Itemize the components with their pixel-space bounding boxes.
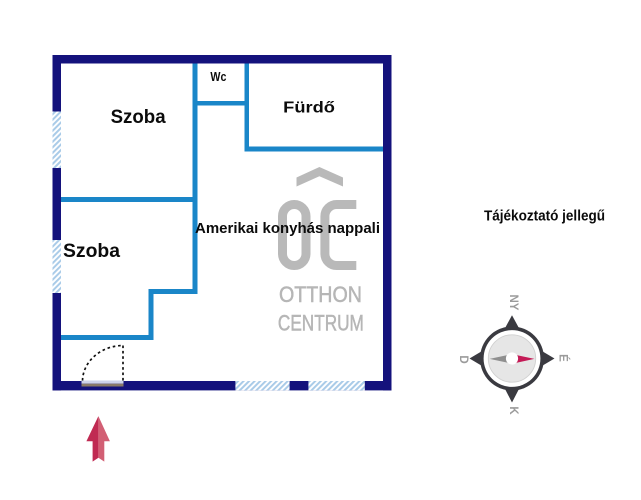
svg-text:Tájékoztató jellegű: Tájékoztató jellegű xyxy=(484,207,605,224)
svg-text:Amerikai konyhás nappali: Amerikai konyhás nappali xyxy=(195,220,380,237)
svg-text:Wc: Wc xyxy=(210,70,226,84)
svg-text:D: D xyxy=(457,355,469,363)
svg-text:OTTHON: OTTHON xyxy=(279,282,362,307)
svg-text:NY: NY xyxy=(507,295,519,311)
svg-text:É: É xyxy=(557,354,570,362)
svg-text:Szoba: Szoba xyxy=(111,107,166,128)
svg-text:K: K xyxy=(507,406,519,415)
svg-text:Fürdő: Fürdő xyxy=(283,99,335,116)
svg-text:CENTRUM: CENTRUM xyxy=(278,310,364,335)
svg-text:Szoba: Szoba xyxy=(63,240,120,262)
